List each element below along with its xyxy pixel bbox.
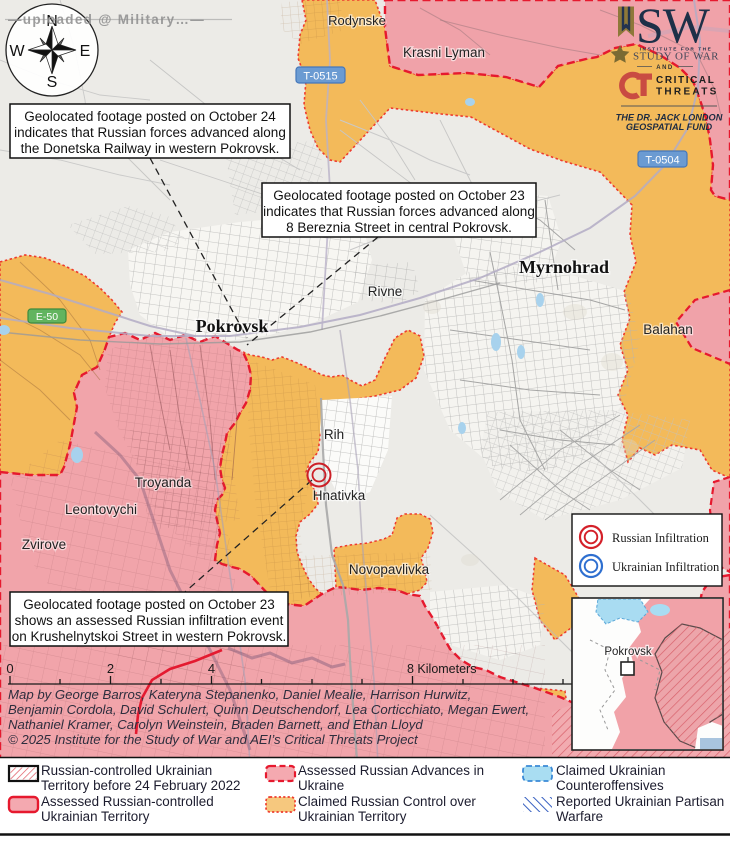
svg-text:8 Bereznia Street in central P: 8 Bereznia Street in central Pokrovsk.: [286, 220, 512, 235]
svg-text:the Donetska Railway in wester: the Donetska Railway in western Pokrovsk…: [21, 141, 280, 156]
svg-text:4: 4: [208, 661, 215, 676]
svg-text:Zvirove: Zvirove: [22, 537, 66, 552]
svg-text:Pokrovsk: Pokrovsk: [604, 646, 652, 658]
svg-text:Russian-controlled Ukrainian: Russian-controlled Ukrainian: [41, 763, 212, 778]
svg-text:Krasni Lyman: Krasni Lyman: [403, 45, 485, 60]
svg-text:Assessed Russian-controlled: Assessed Russian-controlled: [41, 794, 214, 809]
svg-text:Ukraine: Ukraine: [298, 778, 344, 793]
svg-text:E: E: [80, 43, 91, 60]
svg-text:E-50: E-50: [36, 311, 58, 323]
svg-text:SW: SW: [636, 0, 711, 53]
svg-text:shows an assessed Russian infi: shows an assessed Russian infiltration e…: [15, 613, 284, 628]
svg-text:Leontovychi: Leontovychi: [65, 502, 137, 517]
svg-text:Balahan: Balahan: [643, 322, 693, 337]
svg-text:indicates that Russian forces: indicates that Russian forces advanced a…: [14, 125, 286, 140]
svg-text:Assessed Russian Advances in: Assessed Russian Advances in: [298, 763, 484, 778]
svg-text:© 2025 Institute for the Study: © 2025 Institute for the Study of War an…: [8, 732, 419, 747]
svg-text:Rodynske: Rodynske: [328, 13, 386, 28]
svg-text:Claimed Ukrainian: Claimed Ukrainian: [556, 763, 665, 778]
svg-text:AND: AND: [656, 65, 674, 71]
svg-text:0: 0: [6, 661, 13, 676]
svg-text:Rivne: Rivne: [368, 284, 403, 299]
svg-text:Hnativka: Hnativka: [313, 488, 366, 503]
svg-text:Geolocated footage posted on O: Geolocated footage posted on October 23: [23, 597, 274, 612]
svg-text:THREATS: THREATS: [656, 87, 719, 98]
svg-text:Geolocated footage posted on O: Geolocated footage posted on October 23: [273, 188, 524, 203]
svg-text:W: W: [9, 43, 25, 60]
svg-text:Nathaniel Kramer, Carolyn Wein: Nathaniel Kramer, Carolyn Weinstein, Bra…: [8, 717, 423, 732]
svg-text:Map by George Barros, Kateryna: Map by George Barros, Kateryna Stepanenk…: [8, 687, 471, 702]
svg-text:T-0515: T-0515: [303, 71, 337, 83]
svg-text:Counteroffensives: Counteroffensives: [556, 778, 664, 793]
svg-text:THE DR. JACK LONDON: THE DR. JACK LONDON: [616, 113, 723, 123]
svg-text:GEOSPATIAL FUND: GEOSPATIAL FUND: [626, 122, 713, 132]
svg-text:S: S: [47, 74, 58, 91]
svg-text:Pokrovsk: Pokrovsk: [196, 316, 269, 336]
svg-text:Ukrainian Territory: Ukrainian Territory: [298, 809, 407, 824]
svg-text:Territory before 24 February 2: Territory before 24 February 2022: [41, 778, 240, 793]
svg-text:Reported Ukrainian Partisan: Reported Ukrainian Partisan: [556, 794, 724, 809]
svg-text:8 Kilometers: 8 Kilometers: [407, 662, 476, 676]
svg-text:Troyanda: Troyanda: [135, 475, 192, 490]
svg-text:Benjamin Cordola, David Schule: Benjamin Cordola, David Schulert, Quinn …: [8, 702, 529, 717]
svg-text:indicates that Russian forces: indicates that Russian forces advanced a…: [263, 204, 535, 219]
svg-text:Warfare: Warfare: [556, 809, 603, 824]
svg-text:Ukrainian Infiltration: Ukrainian Infiltration: [612, 560, 720, 574]
svg-text:STUDY OF WAR: STUDY OF WAR: [633, 51, 719, 63]
svg-text:Novopavlivka: Novopavlivka: [349, 562, 430, 577]
svg-text:Geolocated footage posted on O: Geolocated footage posted on October 24: [24, 109, 276, 124]
svg-text:Russian Infiltration: Russian Infiltration: [612, 531, 710, 545]
svg-text:on Krushelnytskoi Street in we: on Krushelnytskoi Street in western Pokr…: [12, 629, 287, 644]
svg-text:T-0504: T-0504: [645, 155, 679, 167]
svg-text:Rih: Rih: [324, 427, 344, 442]
svg-text:CRITICAL: CRITICAL: [656, 75, 715, 86]
svg-text:Ukrainian Territory: Ukrainian Territory: [41, 809, 150, 824]
svg-text:Myrnohrad: Myrnohrad: [519, 257, 609, 277]
svg-text:2: 2: [107, 661, 114, 676]
svg-text:Claimed Russian Control over: Claimed Russian Control over: [298, 794, 476, 809]
